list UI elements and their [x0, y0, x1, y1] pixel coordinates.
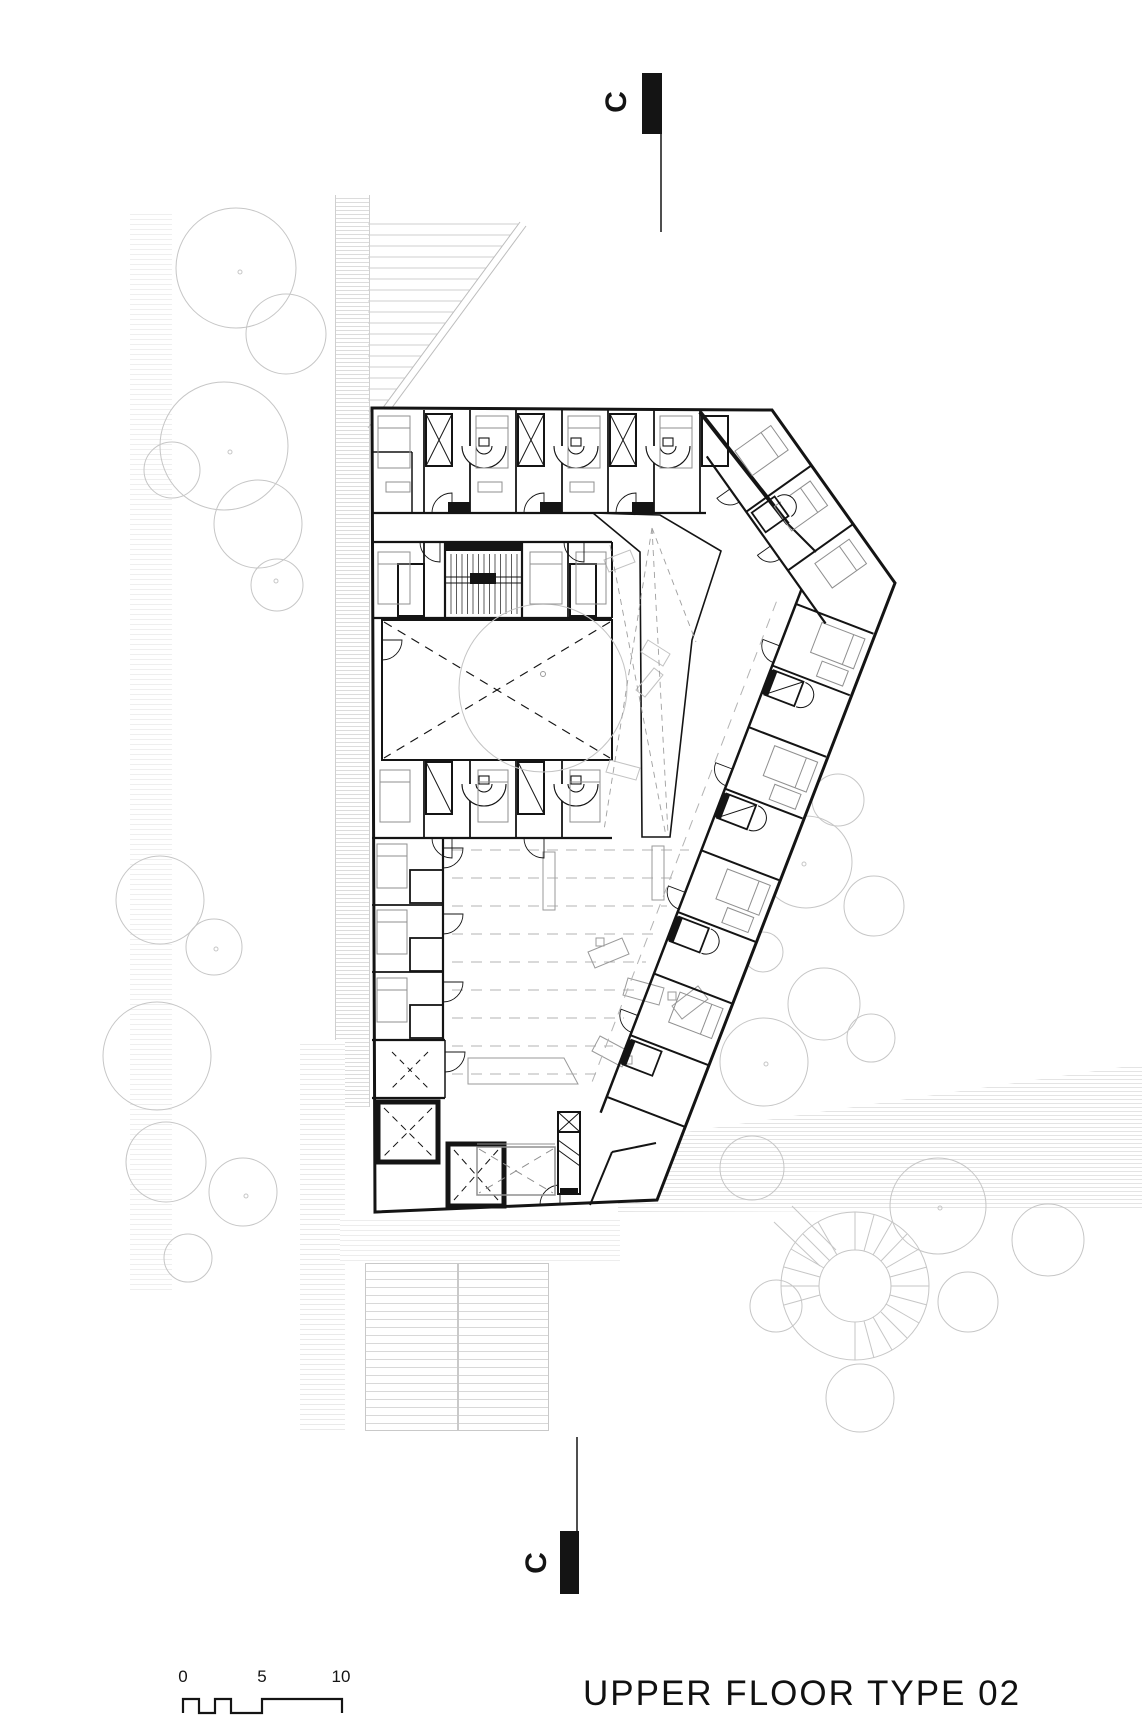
drawing-sheet: C C 0 5 10 UPPER FLOOR TYPE 02 [0, 0, 1142, 1734]
scale-tick-10: 10 [329, 1667, 353, 1687]
section-letter-top: C [601, 86, 633, 118]
section-letter-bottom: C [521, 1547, 553, 1579]
scale-tick-0: 0 [175, 1667, 191, 1687]
section-cut-marker-top [642, 73, 662, 232]
floor-plan [0, 0, 1142, 1734]
scale-bar [183, 1699, 342, 1713]
section-cut-marker-bottom [560, 1437, 579, 1594]
site-spiral-ramp [774, 1206, 929, 1360]
courtyard-void [382, 604, 627, 772]
sheet-title: UPPER FLOOR TYPE 02 [583, 1674, 1021, 1714]
site-ramp-north [368, 222, 526, 432]
scale-tick-5: 5 [254, 1667, 270, 1687]
